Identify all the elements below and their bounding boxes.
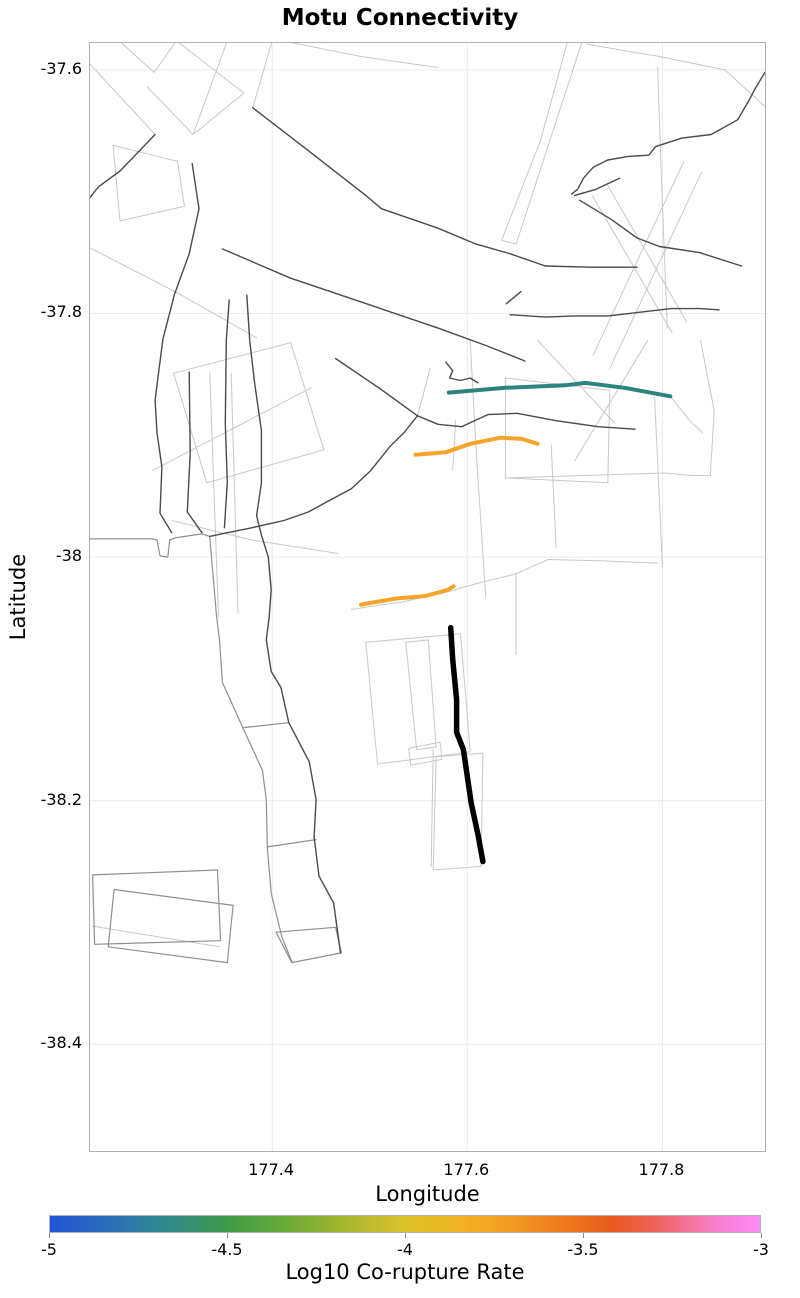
map-canvas — [90, 43, 765, 1151]
fault-trace-dark — [572, 72, 765, 194]
fault-outline — [670, 396, 702, 433]
fault-outline — [655, 398, 663, 567]
y-tick-label: -37.8 — [0, 303, 82, 321]
fault-outline — [610, 172, 702, 368]
fault-outline — [453, 421, 456, 471]
fault-trace-dark — [247, 295, 341, 953]
colorbar-tick-label: -3.5 — [553, 1240, 613, 1259]
fault-outline — [90, 248, 257, 338]
fault-outline — [90, 64, 155, 135]
colorbar-tickmark — [761, 1233, 762, 1238]
fault-outline — [113, 145, 184, 221]
fault-trace-dark — [210, 416, 418, 537]
colorbar-tick-label: -5 — [19, 1240, 79, 1259]
x-tick-label: 177.8 — [621, 1160, 701, 1179]
x-tick-label: 177.6 — [426, 1160, 506, 1179]
fault-outline — [593, 161, 684, 355]
chart-title: Motu Connectivity — [0, 5, 800, 31]
fault-outline — [587, 44, 725, 70]
fault-outline — [608, 186, 687, 322]
fault-trace — [267, 840, 316, 847]
y-tick-label: -37.6 — [0, 60, 82, 78]
fault-outline — [119, 43, 177, 72]
colorbar-tickmark — [49, 1233, 50, 1238]
fault-trace-dark — [545, 266, 637, 267]
fault-outline — [575, 340, 648, 461]
fault-outline — [147, 43, 244, 135]
fault-outline — [253, 43, 273, 108]
co-rupture-segment-teal — [449, 383, 671, 396]
y-tick-label: -38.4 — [0, 1034, 82, 1052]
fault-outline — [210, 372, 219, 617]
colorbar-tick-label: -3 — [731, 1240, 791, 1259]
fault-trace — [90, 534, 210, 557]
fault-trace — [108, 890, 233, 963]
fault-trace-dark — [224, 300, 229, 528]
fault-trace-dark — [222, 249, 525, 361]
fault-outline — [406, 640, 436, 750]
fault-trace-dark — [506, 292, 521, 304]
fault-outline — [701, 340, 715, 475]
colorbar-tickmark — [583, 1233, 584, 1238]
fault-trace-dark — [446, 362, 478, 383]
fault-outline — [551, 445, 556, 547]
y-axis-label: Latitude — [6, 554, 30, 640]
fault-outline — [502, 43, 568, 240]
fault-outline — [538, 340, 615, 423]
colorbar-tickmark — [227, 1233, 228, 1238]
fault-outline — [282, 43, 438, 68]
fault-outline — [502, 240, 517, 244]
colorbar — [49, 1215, 761, 1233]
fault-outline — [174, 343, 324, 483]
colorbar-tick-label: -4 — [375, 1240, 435, 1259]
fault-outline — [725, 70, 765, 107]
fault-outline — [470, 340, 476, 450]
plot-area — [89, 42, 766, 1152]
fault-outline — [592, 195, 672, 333]
fault-trace-dark — [155, 164, 199, 533]
fault-outline — [505, 378, 609, 483]
colorbar-tick-label: -4.5 — [197, 1240, 257, 1259]
fault-outline — [409, 742, 442, 765]
fault-trace — [244, 723, 289, 728]
co-rupture-segment-orange-lower — [361, 586, 454, 604]
fault-outline — [231, 373, 238, 613]
fault-outline — [418, 368, 431, 416]
fault-trace — [276, 927, 341, 962]
y-tick-label: -38 — [0, 547, 82, 565]
fault-outline — [351, 560, 657, 610]
fault-trace-dark — [90, 135, 155, 198]
fault-trace-dark — [336, 359, 635, 430]
y-tick-label: -38.2 — [0, 791, 82, 809]
fault-trace-dark — [187, 372, 202, 533]
colorbar-label: Log10 Co-rupture Rate — [45, 1260, 765, 1284]
x-axis-label: Longitude — [89, 1182, 766, 1206]
x-tick-label: 177.4 — [231, 1160, 311, 1179]
fault-outline — [476, 450, 486, 597]
fault-outline — [431, 750, 433, 867]
fault-outline — [516, 43, 582, 244]
colorbar-tickmark — [405, 1233, 406, 1238]
fault-trace-dark — [253, 108, 546, 266]
fault-trace — [210, 536, 292, 961]
